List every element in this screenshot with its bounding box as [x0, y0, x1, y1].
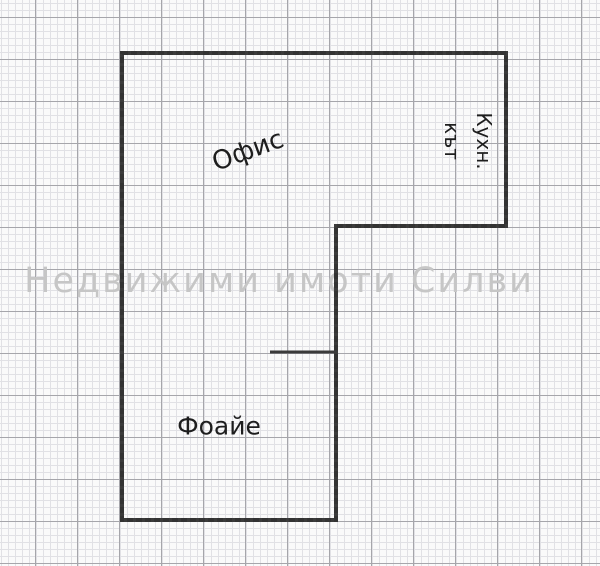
kitchen-label-line2: кът [436, 112, 468, 169]
kitchen-label-line1: Кухн. [468, 112, 500, 169]
room-label-foyer: Фоайе [177, 412, 261, 441]
floorplan-canvas: Недвижими имоти Силви Офис Кухн. кът Фоа… [0, 0, 600, 566]
room-label-kitchen-nook: Кухн. кът [436, 112, 500, 169]
floorplan-walls [0, 0, 600, 566]
